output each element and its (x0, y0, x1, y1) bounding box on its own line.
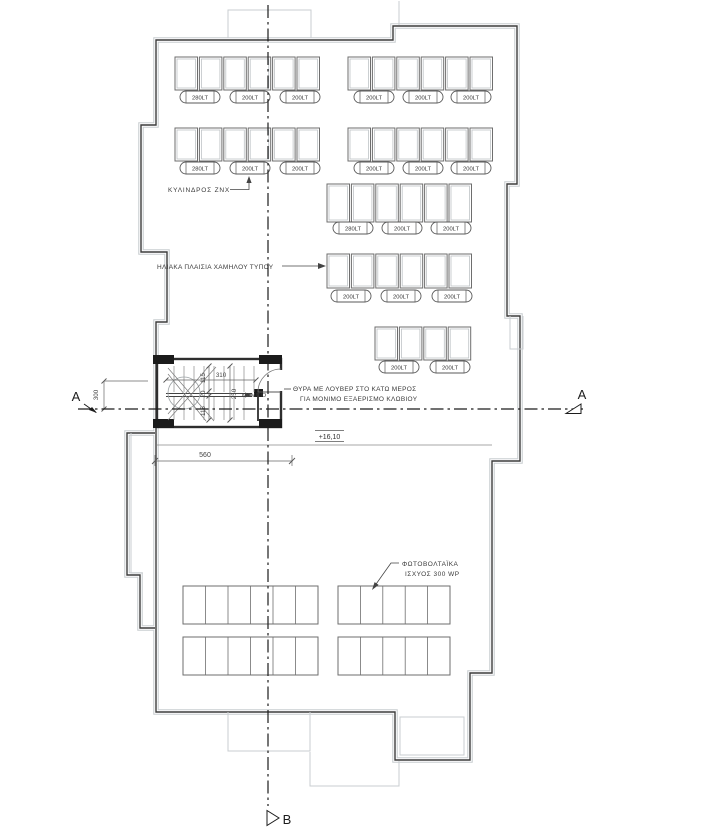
solar-panel (400, 184, 423, 222)
tank-capacity-label: 200LT (230, 91, 270, 103)
section-marker-a-right: A (566, 387, 587, 414)
dim-560: 560 (152, 452, 295, 466)
solar-panel (397, 128, 420, 161)
svg-text:ΗΛΙΑΚΑ ΠΛΑΙΣΙΑ ΧΑΜΗΛΟΥ ΤΥΠΟΥ: ΗΛΙΑΚΑ ΠΛΑΙΣΙΑ ΧΑΜΗΛΟΥ ΤΥΠΟΥ (157, 264, 274, 271)
svg-text:200LT: 200LT (463, 95, 479, 101)
solar-panel (327, 184, 350, 222)
solar-panel (248, 128, 271, 161)
roof-plan-svg: 280LT 200LT 200LT 200LT 200LT 200LT 280L… (0, 0, 701, 839)
solar-panel (376, 184, 399, 222)
solar-panel (351, 184, 374, 222)
solar-panel (224, 128, 247, 161)
dim-300: 300 (93, 379, 148, 412)
solar-panel (297, 57, 320, 90)
tank-capacity-label: 200LT (379, 361, 419, 373)
tank-capacity-label: 200LT (280, 162, 320, 174)
pv-arrays (183, 586, 450, 675)
solar-panel (470, 128, 493, 161)
svg-text:ΙΣΧΥΟΣ 300 WP: ΙΣΧΥΟΣ 300 WP (405, 571, 460, 578)
solar-panel (424, 327, 447, 360)
tank-capacity-label: 280LT (180, 91, 220, 103)
svg-text:B: B (283, 812, 292, 827)
tank-capacity-label: 200LT (403, 91, 443, 103)
dim-310: 310 (216, 372, 227, 379)
stair-room-label: ΚΛΙΜ/ΣΙΟ (242, 393, 267, 399)
svg-text:200LT: 200LT (343, 294, 359, 300)
solar-panel (375, 327, 398, 360)
tank-capacity-label: 200LT (230, 162, 270, 174)
svg-text:ΚΥΛΙΝΔΡΟΣ ΖΝΧ: ΚΥΛΙΝΔΡΟΣ ΖΝΧ (168, 187, 230, 194)
svg-text:200LT: 200LT (242, 166, 258, 172)
roof-plan-canvas: 280LT 200LT 200LT 200LT 200LT 200LT 280L… (0, 0, 701, 839)
svg-text:560: 560 (199, 452, 211, 459)
solar-panel (449, 254, 472, 288)
svg-text:200LT: 200LT (463, 166, 479, 172)
tank-capacity-label: 200LT (432, 290, 472, 302)
tank-capacity-label: 200LT (354, 162, 394, 174)
svg-text:200LT: 200LT (292, 95, 308, 101)
svg-text:200LT: 200LT (242, 95, 258, 101)
tank-capacity-label: 200LT (381, 290, 421, 302)
dim-250: 250 (231, 388, 238, 399)
solar-panel (224, 57, 247, 90)
svg-text:ΓΙΑ ΜΟΝΙΜΟ ΕΞΑΕΡΙΣΜΟ ΚΛΩΒΙΟΥ: ΓΙΑ ΜΟΝΙΜΟ ΕΞΑΕΡΙΣΜΟ ΚΛΩΒΙΟΥ (300, 396, 418, 403)
solar-panel (248, 57, 271, 90)
solar-panel (297, 128, 320, 161)
solar-panel (421, 128, 444, 161)
svg-text:ΘΥΡΑ ΜΕ ΛΟΥΒΕΡ ΣΤΟ ΚΑΤΩ ΜΕΡΟΣ: ΘΥΡΑ ΜΕ ΛΟΥΒΕΡ ΣΤΟ ΚΑΤΩ ΜΕΡΟΣ (293, 386, 416, 393)
svg-text:200LT: 200LT (366, 95, 382, 101)
pv-module-row (338, 637, 450, 675)
solar-panel (446, 57, 469, 90)
solar-panel (348, 128, 371, 161)
solar-panel (449, 184, 472, 222)
solar-panel (421, 57, 444, 90)
tank-capacity-label: 200LT (354, 91, 394, 103)
tank-capacity-label: 280LT (180, 162, 220, 174)
solar-panel (273, 57, 296, 90)
svg-text:200LT: 200LT (415, 166, 431, 172)
tank-capacity-label: 200LT (430, 361, 470, 373)
tank-capacity-label: 200LT (382, 222, 422, 234)
svg-text:200LT: 200LT (443, 226, 459, 232)
pv-module-row (338, 586, 450, 624)
solar-panel (351, 254, 374, 288)
svg-text:200LT: 200LT (442, 365, 458, 371)
svg-text:200LT: 200LT (394, 226, 410, 232)
svg-text:200LT: 200LT (292, 166, 308, 172)
svg-text:ΦΩΤΟΒΟΛΤΑΪΚΑ: ΦΩΤΟΒΟΛΤΑΪΚΑ (402, 560, 459, 568)
svg-text:200LT: 200LT (366, 166, 382, 172)
staircase: 310 115 20 115 250 ΚΛΙΜ/ΣΙΟ (153, 355, 282, 428)
section-marker-b: B (267, 811, 291, 828)
dim-115-upper: 115 (200, 373, 207, 383)
solar-panel (175, 57, 198, 90)
tank-capacity-label: 200LT (403, 162, 443, 174)
solar-collector-panels (175, 57, 493, 360)
svg-text:200LT: 200LT (393, 294, 409, 300)
annotation-door-note: ΘΥΡΑ ΜΕ ΛΟΥΒΕΡ ΣΤΟ ΚΑΤΩ ΜΕΡΟΣ ΓΙΑ ΜΟΝΙΜΟ… (284, 386, 418, 403)
solar-panel (397, 57, 420, 90)
solar-panel (446, 128, 469, 161)
svg-text:300: 300 (93, 389, 100, 400)
solar-panel (372, 57, 395, 90)
solar-panel (348, 57, 371, 90)
annotation-solar-panels: ΗΛΙΑΚΑ ΠΛΑΙΣΙΑ ΧΑΜΗΛΟΥ ΤΥΠΟΥ (157, 263, 326, 271)
solar-panel (425, 184, 448, 222)
solar-panel (399, 327, 422, 360)
svg-text:200LT: 200LT (415, 95, 431, 101)
solar-panel (448, 327, 471, 360)
svg-text:A: A (72, 389, 81, 404)
svg-text:280LT: 280LT (192, 166, 208, 172)
tank-capacity-label: 200LT (451, 162, 491, 174)
tank-capacity-label: 200LT (280, 91, 320, 103)
solar-panel (175, 128, 198, 161)
svg-text:200LT: 200LT (444, 294, 460, 300)
svg-text:280LT: 280LT (192, 95, 208, 101)
dim-20: 20 (200, 390, 207, 397)
elevation-marker: +16,10 (315, 431, 344, 442)
tank-capacity-label: 280LT (333, 222, 373, 234)
solar-panel (470, 57, 493, 90)
svg-text:A: A (578, 387, 587, 402)
svg-text:280LT: 280LT (345, 226, 361, 232)
solar-panel (199, 128, 222, 161)
solar-panel (199, 57, 222, 90)
solar-panel (400, 254, 423, 288)
tank-capacity-label: 200LT (451, 91, 491, 103)
solar-panel (376, 254, 399, 288)
svg-text:+16,10: +16,10 (319, 434, 341, 441)
solar-panel (273, 128, 296, 161)
dim-115-lower: 115 (200, 406, 207, 416)
tank-capacity-label: 200LT (331, 290, 371, 302)
solar-panel (327, 254, 350, 288)
tank-capacity-label: 200LT (431, 222, 471, 234)
annotation-cylinder: ΚΥΛΙΝΔΡΟΣ ΖΝΧ (168, 176, 252, 194)
solar-panel (372, 128, 395, 161)
svg-text:200LT: 200LT (391, 365, 407, 371)
solar-panel (425, 254, 448, 288)
